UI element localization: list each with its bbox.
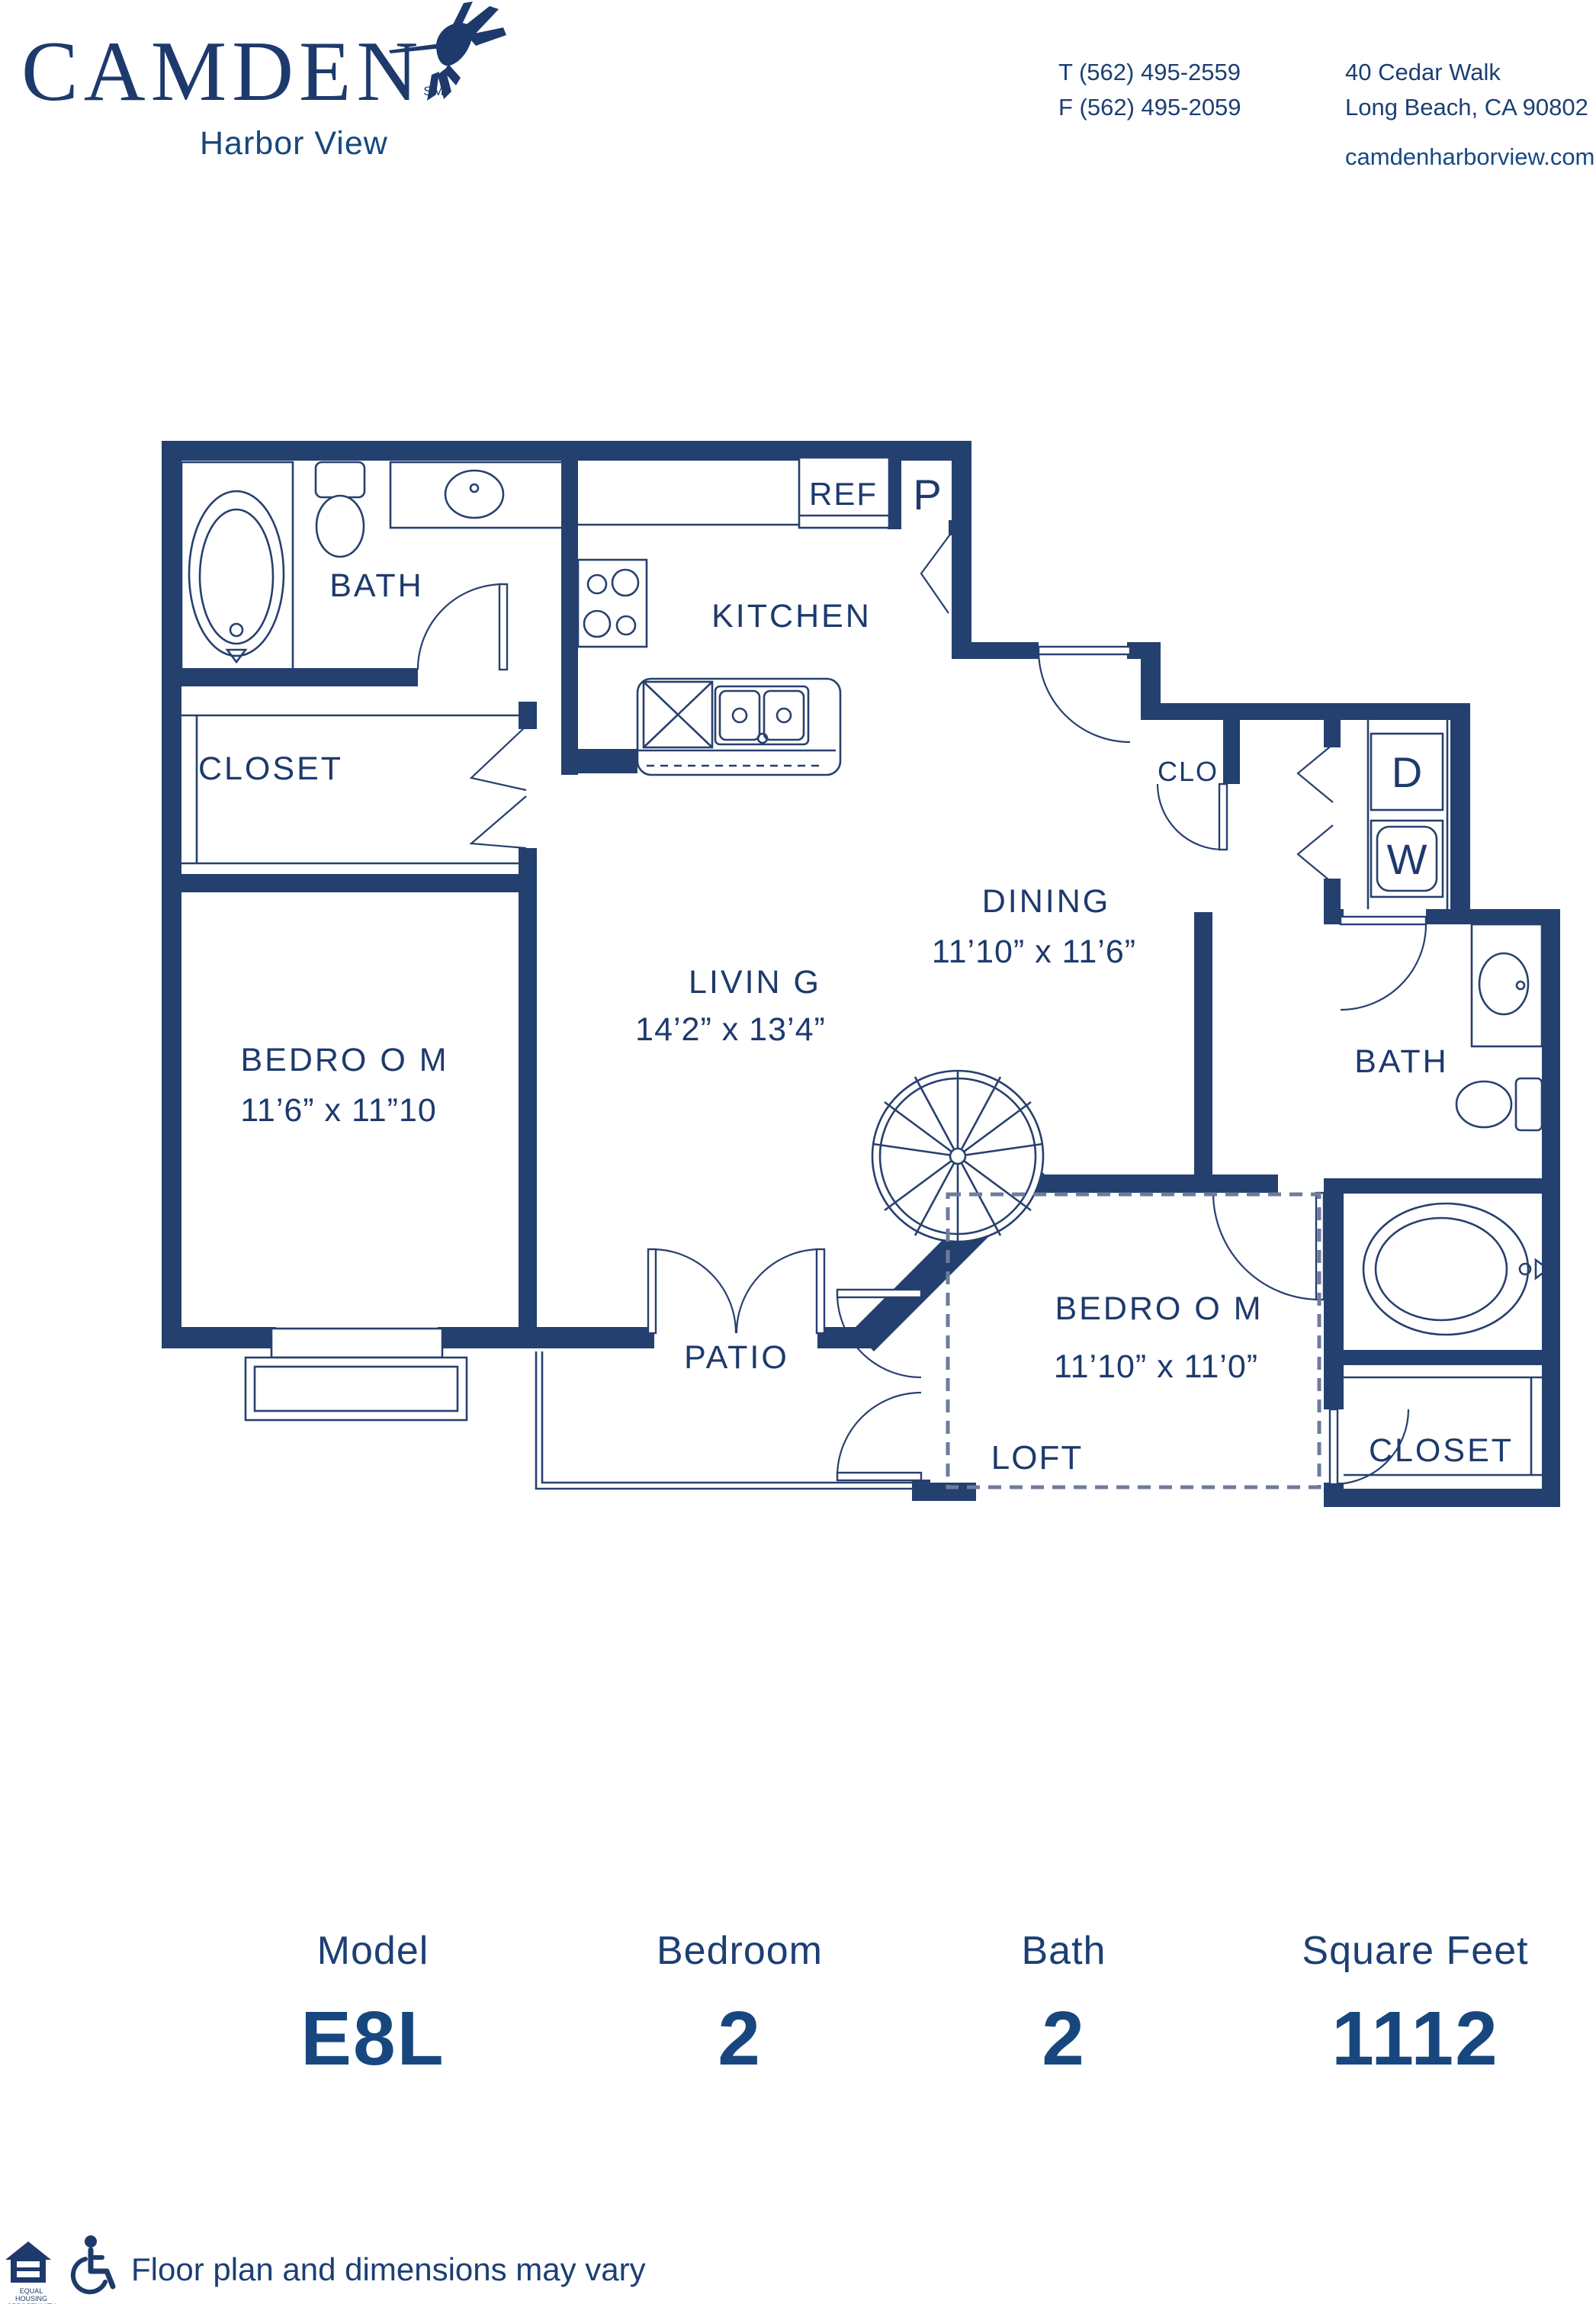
stat-sqft: Square Feet 1112	[1278, 1928, 1553, 2083]
refrigerator-label: REF	[809, 476, 878, 512]
wheelchair-icon	[70, 2235, 125, 2296]
closet2-label: CLOSET	[1369, 1432, 1514, 1469]
stat-sqft-value: 1112	[1278, 1995, 1553, 2083]
vanity2	[1472, 924, 1542, 1046]
bath2-label: BATH	[1354, 1043, 1449, 1080]
patio-label: PATIO	[684, 1339, 789, 1376]
stat-model-label: Model	[236, 1928, 510, 1974]
closet1-shelves	[181, 715, 519, 863]
eho-caption-line1: EQUAL HOUSING	[5, 2287, 58, 2302]
closet1-label: CLOSET	[198, 750, 343, 787]
bathtub1-icon	[189, 491, 284, 656]
stat-bedroom-value: 2	[602, 1995, 877, 2083]
bedroom1-window-icon	[246, 1329, 467, 1420]
stat-bath: Bath 2	[926, 1928, 1201, 2083]
pantry-label: P	[913, 471, 941, 519]
disclaimer-text: Floor plan and dimensions may vary	[131, 2251, 646, 2288]
stat-sqft-label: Square Feet	[1278, 1928, 1553, 1974]
stat-model: Model E8L	[236, 1928, 510, 2083]
fixture-labels: REF P D W	[809, 471, 1427, 883]
living-dims: 14’2” x 13’4”	[635, 1011, 826, 1048]
kitchen-sink-icon	[715, 686, 808, 744]
stat-bath-label: Bath	[926, 1928, 1201, 1974]
dryer-label: D	[1392, 748, 1422, 796]
kitchen-label: KITCHEN	[711, 598, 872, 635]
dining-dims: 11’10” x 11’6”	[932, 933, 1136, 970]
tub1-alcove	[181, 462, 293, 670]
sink2-icon	[1479, 953, 1528, 1014]
bedroom1-label: BEDRO O M	[240, 1042, 448, 1078]
bedroom1-dims: 11’6” x 11”10	[240, 1092, 437, 1129]
equal-housing-icon: EQUAL HOUSING OPPORTUNITY	[5, 2241, 58, 2304]
stat-model-value: E8L	[236, 1995, 510, 2083]
washer-label: W	[1387, 835, 1427, 883]
loft-label: LOFT	[991, 1439, 1083, 1477]
stat-bedroom-label: Bedroom	[602, 1928, 877, 1974]
floorplan-sheet: CAMDENSM Harbor View T (562) 495-2559 F …	[0, 0, 1596, 2304]
toilet1-icon	[316, 462, 364, 497]
sink1-icon	[445, 471, 503, 518]
bath1-label: BATH	[329, 567, 424, 604]
bathtub2-icon	[1363, 1203, 1528, 1335]
closet1-bifold-icon	[471, 726, 526, 848]
stat-bedroom: Bedroom 2	[602, 1928, 877, 2083]
bedroom2-label: BEDRO O M	[1055, 1290, 1263, 1327]
laundry-bifold-icon	[1298, 744, 1333, 802]
bath2-fixtures	[1363, 924, 1548, 1335]
living-label: LIVIN G	[689, 964, 821, 1001]
pantry-door-icon	[921, 532, 952, 613]
bedroom2-dims: 11’10” x 11’0”	[1054, 1348, 1258, 1385]
entry-door-icon	[1039, 647, 1130, 654]
clo-label: CLO	[1158, 756, 1219, 787]
spiral-staircase-icon	[872, 1071, 1043, 1242]
dining-label: DINING	[982, 883, 1111, 920]
stat-bath-value: 2	[926, 1995, 1201, 2083]
toilet2-icon	[1516, 1078, 1542, 1130]
